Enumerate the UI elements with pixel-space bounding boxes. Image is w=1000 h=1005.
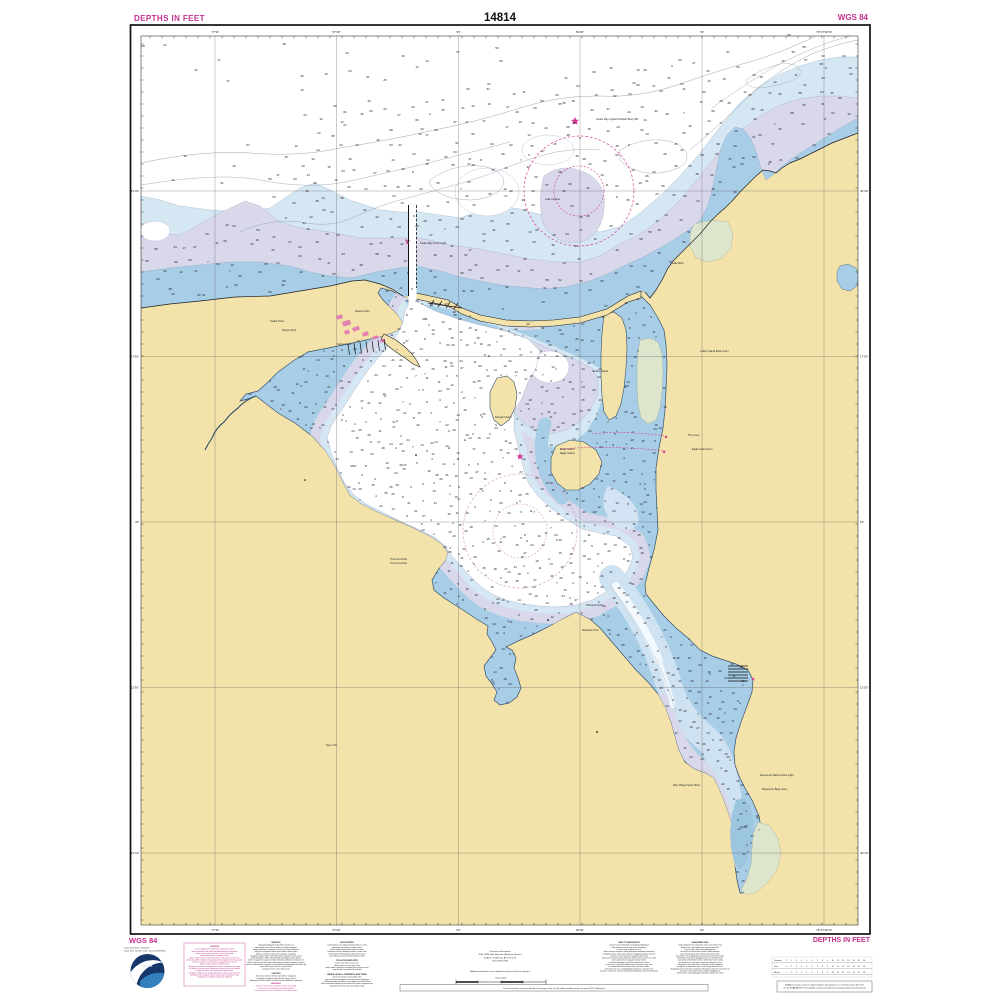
- svg-text:21: 21: [390, 333, 394, 337]
- svg-text:32: 32: [564, 76, 568, 80]
- svg-text:58: 58: [545, 278, 549, 282]
- svg-text:11: 11: [449, 587, 452, 591]
- svg-text:56: 56: [672, 193, 676, 197]
- svg-text:50: 50: [603, 159, 607, 163]
- svg-text:58: 58: [639, 237, 643, 241]
- svg-text:17: 17: [612, 479, 616, 483]
- svg-text:17: 17: [756, 816, 760, 820]
- svg-text:WGS 84: WGS 84: [838, 13, 869, 22]
- svg-text:18: 18: [571, 99, 575, 103]
- svg-text:23: 23: [570, 204, 574, 208]
- svg-text:10: 10: [676, 667, 680, 671]
- svg-text:51: 51: [429, 269, 433, 273]
- svg-text:23: 23: [659, 686, 663, 690]
- svg-text:47: 47: [327, 261, 331, 265]
- svg-text:51: 51: [462, 289, 466, 293]
- svg-text:28: 28: [369, 242, 373, 246]
- svg-text:58: 58: [375, 252, 379, 256]
- svg-text:20: 20: [353, 347, 357, 351]
- svg-text:17: 17: [596, 552, 600, 556]
- svg-text:31: 31: [433, 291, 437, 295]
- svg-text:13: 13: [662, 386, 666, 390]
- svg-text:11: 11: [683, 746, 686, 750]
- svg-text:24: 24: [729, 731, 733, 735]
- svg-text:44: 44: [532, 240, 536, 244]
- svg-text:35: 35: [460, 271, 464, 275]
- svg-text:13: 13: [647, 530, 651, 534]
- svg-text:14: 14: [420, 443, 424, 447]
- svg-text:16: 16: [716, 716, 720, 720]
- svg-text:12: 12: [674, 731, 678, 735]
- svg-text:19: 19: [633, 415, 637, 419]
- svg-text:15: 15: [632, 605, 636, 609]
- svg-text:13: 13: [349, 450, 353, 454]
- svg-text:16: 16: [427, 469, 431, 473]
- svg-text:67: 67: [506, 105, 510, 109]
- svg-text:17: 17: [595, 477, 599, 481]
- svg-text:17: 17: [645, 644, 649, 648]
- svg-text:27: 27: [533, 578, 537, 582]
- svg-text:25: 25: [639, 546, 643, 550]
- svg-text:23: 23: [849, 72, 853, 76]
- svg-text:42: 42: [773, 80, 777, 84]
- svg-text:18: 18: [657, 228, 661, 232]
- svg-text:63: 63: [680, 82, 684, 86]
- svg-text:20: 20: [248, 392, 252, 396]
- svg-text:12: 12: [179, 270, 183, 274]
- svg-text:48: 48: [282, 42, 286, 46]
- svg-text:64: 64: [453, 150, 457, 154]
- svg-text:13: 13: [601, 315, 605, 319]
- svg-text:27: 27: [327, 385, 331, 389]
- svg-text:12: 12: [319, 117, 323, 121]
- svg-text:11: 11: [425, 376, 428, 380]
- svg-text:19: 19: [484, 616, 488, 620]
- svg-text:11: 11: [437, 380, 440, 384]
- svg-text:21: 21: [716, 759, 720, 763]
- svg-text:13: 13: [642, 459, 646, 463]
- svg-text:26: 26: [390, 235, 394, 239]
- svg-text:10: 10: [347, 380, 351, 384]
- svg-text:21: 21: [446, 200, 450, 204]
- svg-text:13: 13: [578, 575, 582, 579]
- svg-text:22: 22: [406, 239, 410, 243]
- svg-text:50': 50': [700, 928, 704, 932]
- svg-text:24: 24: [612, 509, 616, 513]
- svg-text:24: 24: [698, 663, 702, 667]
- svg-text:64: 64: [341, 169, 345, 173]
- svg-text:Eagle Island: Eagle Island: [560, 447, 575, 451]
- svg-text:26: 26: [389, 485, 393, 489]
- svg-text:50': 50': [700, 30, 704, 34]
- svg-text:13: 13: [441, 320, 445, 324]
- svg-text:29: 29: [232, 164, 236, 168]
- svg-text:18: 18: [640, 551, 644, 555]
- svg-text:NOAA encourages users to submi: NOAA encourages users to submit inquirie…: [785, 984, 864, 987]
- svg-text:Lake Bluff: Lake Bluff: [672, 261, 684, 265]
- svg-text:14: 14: [750, 834, 754, 838]
- svg-text:22: 22: [441, 98, 445, 102]
- svg-text:13: 13: [432, 489, 436, 493]
- svg-text:32: 32: [614, 271, 618, 275]
- svg-text:21: 21: [426, 204, 430, 208]
- svg-text:67: 67: [604, 304, 608, 308]
- svg-text:12: 12: [678, 679, 682, 683]
- svg-text:19: 19: [532, 417, 536, 421]
- svg-text:27: 27: [388, 373, 392, 377]
- svg-text:18: 18: [517, 572, 521, 576]
- svg-text:43: 43: [733, 144, 737, 148]
- svg-text:26: 26: [559, 576, 563, 580]
- svg-text:29: 29: [515, 110, 519, 114]
- svg-text:17: 17: [739, 812, 743, 816]
- svg-text:21: 21: [547, 410, 551, 414]
- svg-text:23: 23: [379, 504, 383, 508]
- svg-text:10: 10: [533, 428, 537, 432]
- svg-text:Eagle Island Hum: Eagle Island Hum: [692, 447, 712, 451]
- svg-text:11: 11: [627, 336, 630, 340]
- svg-text:13: 13: [666, 671, 670, 675]
- svg-text:17: 17: [718, 707, 722, 711]
- svg-text:13: 13: [613, 543, 617, 547]
- svg-text:18: 18: [502, 625, 506, 629]
- svg-text:44: 44: [302, 221, 306, 225]
- svg-text:Newark Island: Newark Island: [495, 415, 512, 419]
- svg-text:15: 15: [327, 165, 331, 169]
- svg-text:17: 17: [435, 428, 439, 432]
- svg-text:11: 11: [447, 569, 450, 573]
- svg-text:59: 59: [460, 217, 464, 221]
- svg-text:49: 49: [615, 248, 619, 252]
- svg-text:24: 24: [468, 436, 472, 440]
- svg-text:60: 60: [592, 70, 596, 74]
- svg-text:50: 50: [268, 177, 272, 181]
- svg-text:15: 15: [486, 537, 490, 541]
- svg-text:25: 25: [624, 410, 628, 414]
- svg-text:55: 55: [145, 259, 149, 263]
- svg-text:16: 16: [358, 487, 362, 491]
- svg-text:13: 13: [469, 476, 473, 480]
- svg-text:11: 11: [474, 328, 477, 332]
- svg-text:51: 51: [752, 135, 756, 139]
- svg-text:52: 52: [650, 269, 654, 273]
- svg-text:27: 27: [331, 407, 335, 411]
- svg-text:25: 25: [383, 78, 387, 82]
- svg-text:13: 13: [549, 443, 553, 447]
- svg-text:19: 19: [730, 662, 734, 666]
- svg-text:22: 22: [639, 577, 643, 581]
- svg-text:48: 48: [315, 199, 319, 203]
- svg-text:23: 23: [827, 132, 831, 136]
- svg-text:63: 63: [468, 268, 472, 272]
- svg-text:24: 24: [655, 192, 659, 196]
- svg-text:16: 16: [534, 594, 538, 598]
- svg-text:34: 34: [341, 252, 345, 256]
- svg-text:10: 10: [558, 538, 562, 542]
- svg-text:12: 12: [414, 329, 418, 333]
- svg-text:27: 27: [574, 598, 578, 602]
- svg-text:12: 12: [555, 354, 559, 358]
- svg-text:20: 20: [623, 545, 627, 549]
- svg-text:13: 13: [629, 264, 633, 268]
- svg-text:37: 37: [768, 91, 772, 95]
- svg-text:53: 53: [163, 269, 167, 273]
- svg-text:36: 36: [333, 104, 337, 108]
- svg-text:21: 21: [803, 83, 807, 87]
- svg-text:44: 44: [616, 125, 620, 129]
- svg-text:60: 60: [441, 108, 445, 112]
- svg-text:39: 39: [551, 243, 555, 247]
- svg-text:13: 13: [486, 374, 490, 378]
- svg-text:22: 22: [588, 429, 592, 433]
- svg-text:20: 20: [533, 106, 537, 110]
- svg-text:26: 26: [625, 384, 629, 388]
- svg-text:27: 27: [504, 194, 508, 198]
- svg-text:16: 16: [502, 535, 506, 539]
- svg-text:10: 10: [402, 467, 406, 471]
- svg-text:21: 21: [367, 401, 371, 405]
- svg-text:34: 34: [643, 118, 647, 122]
- svg-text:22: 22: [250, 242, 254, 246]
- svg-text:23: 23: [703, 716, 707, 720]
- svg-text:21: 21: [530, 617, 534, 621]
- svg-text:10: 10: [556, 512, 560, 516]
- svg-text:25: 25: [360, 112, 364, 116]
- svg-text:60: 60: [683, 194, 687, 198]
- svg-text:38: 38: [433, 253, 437, 257]
- svg-text:14: 14: [321, 196, 325, 200]
- svg-text:33: 33: [654, 109, 658, 113]
- svg-text:27: 27: [402, 330, 406, 334]
- svg-text:64: 64: [820, 90, 824, 94]
- svg-text:11: 11: [379, 241, 382, 245]
- svg-text:27: 27: [523, 551, 527, 555]
- svg-text:43: 43: [397, 225, 401, 229]
- svg-text:13: 13: [400, 201, 404, 205]
- svg-text:11: 11: [342, 364, 345, 368]
- svg-text:13: 13: [501, 647, 505, 651]
- svg-text:19: 19: [622, 472, 626, 476]
- svg-text:21: 21: [509, 620, 513, 624]
- svg-text:25: 25: [676, 656, 680, 660]
- svg-text:27: 27: [475, 470, 479, 474]
- svg-text:19: 19: [497, 472, 501, 476]
- svg-text:54: 54: [640, 128, 644, 132]
- svg-text:40: 40: [376, 138, 380, 142]
- svg-text:27: 27: [652, 84, 656, 88]
- svg-text:25: 25: [384, 491, 388, 495]
- svg-text:51: 51: [669, 260, 673, 264]
- svg-text:59: 59: [752, 155, 756, 159]
- svg-text:11: 11: [624, 480, 627, 484]
- svg-text:36: 36: [674, 164, 678, 168]
- svg-text:58: 58: [798, 91, 802, 95]
- svg-text:20: 20: [478, 364, 482, 368]
- svg-text:12: 12: [586, 590, 590, 594]
- svg-text:11: 11: [732, 674, 735, 678]
- svg-text:17: 17: [369, 440, 373, 444]
- svg-text:44: 44: [707, 119, 711, 123]
- svg-text:50: 50: [205, 232, 209, 236]
- svg-text:32: 32: [588, 162, 592, 166]
- svg-text:25: 25: [488, 192, 492, 196]
- svg-text:DEPTHS IN FEET: DEPTHS IN FEET: [134, 14, 205, 23]
- svg-text:10: 10: [492, 622, 496, 626]
- svg-text:43: 43: [503, 187, 507, 191]
- svg-text:62: 62: [470, 289, 474, 293]
- svg-text:26: 26: [592, 388, 596, 392]
- svg-text:15: 15: [708, 712, 712, 716]
- svg-text:18: 18: [487, 102, 491, 106]
- svg-text:21: 21: [742, 852, 746, 856]
- svg-text:14: 14: [556, 425, 560, 429]
- svg-text:57: 57: [643, 264, 647, 268]
- svg-text:25: 25: [600, 585, 604, 589]
- svg-text:Sloops Point: Sloops Point: [355, 309, 370, 313]
- svg-text:28: 28: [582, 157, 586, 161]
- svg-text:53: 53: [412, 152, 416, 156]
- svg-text:16: 16: [734, 129, 738, 133]
- svg-text:16: 16: [598, 398, 602, 402]
- svg-text:25: 25: [688, 689, 692, 693]
- svg-text:48: 48: [727, 101, 731, 105]
- svg-text:10: 10: [640, 105, 644, 109]
- svg-text:59: 59: [434, 128, 438, 132]
- svg-text:42: 42: [360, 225, 364, 229]
- svg-text:37: 37: [726, 50, 730, 54]
- svg-text:51: 51: [318, 257, 322, 261]
- svg-text:38: 38: [359, 263, 363, 267]
- svg-text:22: 22: [339, 143, 343, 147]
- svg-text:23: 23: [496, 268, 500, 272]
- svg-text:52: 52: [322, 208, 326, 212]
- svg-text:28: 28: [141, 44, 145, 48]
- svg-text:63: 63: [652, 170, 656, 174]
- svg-text:17: 17: [823, 117, 827, 121]
- svg-text:25: 25: [760, 108, 764, 112]
- svg-text:20: 20: [385, 289, 389, 293]
- svg-text:14: 14: [306, 173, 310, 177]
- svg-text:64: 64: [576, 84, 580, 88]
- svg-text:28: 28: [752, 73, 756, 77]
- svg-text:77°W: 77°W: [211, 928, 219, 932]
- svg-text:32: 32: [375, 215, 379, 219]
- svg-text:15: 15: [703, 656, 707, 660]
- svg-text:18: 18: [635, 202, 639, 206]
- svg-text:15: 15: [706, 748, 710, 752]
- svg-text:43: 43: [679, 218, 683, 222]
- svg-text:via the NOAA ASSIST tool avail: via the NOAA ASSIST tool available at ww…: [783, 987, 866, 990]
- svg-text:18: 18: [569, 602, 573, 606]
- svg-text:17: 17: [383, 394, 387, 398]
- svg-text:24: 24: [364, 187, 368, 191]
- svg-text:18: 18: [503, 677, 507, 681]
- svg-text:23: 23: [303, 113, 307, 117]
- svg-text:23: 23: [624, 301, 628, 305]
- svg-text:21: 21: [194, 68, 198, 72]
- svg-text:21: 21: [445, 473, 449, 477]
- svg-text:41: 41: [517, 269, 521, 273]
- svg-text:18: 18: [520, 555, 524, 559]
- svg-text:16: 16: [741, 156, 745, 160]
- svg-text:15: 15: [626, 559, 630, 563]
- svg-text:56: 56: [661, 184, 665, 188]
- svg-text:10: 10: [636, 68, 640, 72]
- svg-text:Bay Village Sport Shop: Bay Village Sport Shop: [673, 783, 700, 787]
- svg-text:15: 15: [458, 523, 462, 527]
- svg-text:13: 13: [541, 300, 545, 304]
- svg-text:53: 53: [579, 279, 583, 283]
- svg-text:22: 22: [445, 423, 449, 427]
- svg-text:23: 23: [420, 127, 424, 131]
- svg-text:16: 16: [405, 299, 409, 303]
- svg-text:Fathoms: Fathoms: [774, 959, 782, 962]
- svg-text:63: 63: [555, 93, 559, 97]
- svg-text:47: 47: [272, 235, 276, 239]
- svg-text:12: 12: [415, 65, 419, 69]
- svg-text:24: 24: [494, 524, 498, 528]
- svg-text:10: 10: [594, 93, 598, 97]
- svg-text:12'30": 12'30": [131, 686, 139, 690]
- svg-text:11: 11: [296, 417, 299, 421]
- svg-text:mariners corrections not local: mariners corrections not local informati…: [600, 969, 658, 972]
- svg-text:22: 22: [598, 367, 602, 371]
- svg-text:43°10': 43°10': [131, 851, 140, 855]
- svg-text:17: 17: [610, 487, 614, 491]
- svg-text:31: 31: [389, 217, 393, 221]
- svg-text:66: 66: [715, 152, 719, 156]
- svg-text:21: 21: [646, 493, 650, 497]
- svg-text:20: 20: [630, 438, 634, 442]
- svg-text:26: 26: [535, 476, 539, 480]
- svg-text:57: 57: [804, 58, 808, 62]
- svg-text:17: 17: [744, 824, 748, 828]
- svg-text:29: 29: [298, 254, 302, 258]
- svg-text:27: 27: [460, 366, 464, 370]
- svg-text:15: 15: [482, 566, 486, 570]
- svg-text:14: 14: [513, 565, 517, 569]
- svg-text:23: 23: [544, 126, 548, 130]
- svg-text:47: 47: [712, 193, 716, 197]
- svg-text:28: 28: [558, 170, 562, 174]
- svg-text:10: 10: [648, 512, 652, 516]
- svg-text:42: 42: [509, 189, 513, 193]
- svg-text:28: 28: [471, 163, 475, 167]
- svg-text:63: 63: [821, 54, 825, 58]
- svg-text:27: 27: [690, 643, 694, 647]
- svg-text:25: 25: [609, 224, 613, 228]
- svg-text:27: 27: [581, 322, 585, 326]
- svg-text:17: 17: [356, 339, 360, 343]
- svg-text:31: 31: [492, 228, 496, 232]
- svg-text:12: 12: [705, 679, 709, 683]
- svg-text:10: 10: [325, 374, 329, 378]
- svg-text:26: 26: [735, 870, 739, 874]
- svg-text:60: 60: [197, 293, 201, 297]
- svg-text:16: 16: [572, 121, 576, 125]
- svg-text:19: 19: [447, 512, 451, 516]
- svg-text:chart current the current to m: chart current the current to mariners lo…: [254, 989, 298, 992]
- svg-text:48: 48: [759, 75, 763, 79]
- svg-text:14: 14: [665, 704, 669, 708]
- svg-text:16: 16: [284, 155, 288, 159]
- svg-text:WGS 1984 Web Mercator (Auxilia: WGS 1984 Web Mercator (Auxiliary Sphere): [479, 953, 522, 956]
- svg-text:15: 15: [726, 787, 730, 791]
- svg-text:25: 25: [522, 476, 526, 480]
- svg-text:21: 21: [575, 337, 579, 341]
- svg-text:38: 38: [168, 287, 172, 291]
- svg-text:43°20': 43°20': [131, 189, 140, 193]
